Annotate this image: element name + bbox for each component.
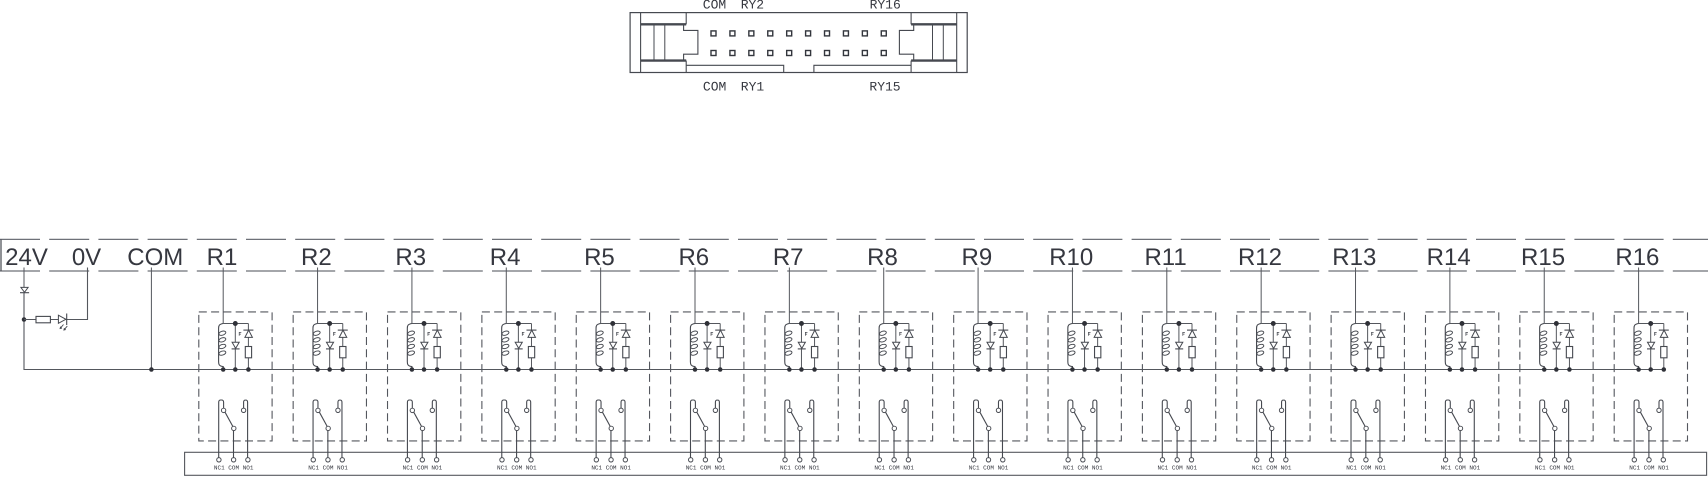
svg-text:NC1 COM NO1: NC1 COM NO1 bbox=[1063, 465, 1103, 472]
svg-text:R14: R14 bbox=[1427, 244, 1471, 271]
svg-text:RY15: RY15 bbox=[869, 79, 900, 94]
svg-text:0V: 0V bbox=[72, 244, 101, 271]
svg-text:R6: R6 bbox=[678, 244, 709, 271]
svg-text:R4: R4 bbox=[490, 244, 521, 271]
svg-text:R7: R7 bbox=[773, 244, 804, 271]
svg-text:RY1: RY1 bbox=[741, 79, 765, 94]
svg-text:NC1 COM NO1: NC1 COM NO1 bbox=[308, 465, 348, 472]
svg-text:NC1 COM NO1: NC1 COM NO1 bbox=[497, 465, 537, 472]
svg-text:R11: R11 bbox=[1144, 244, 1186, 271]
svg-text:R1: R1 bbox=[207, 244, 238, 271]
svg-text:RY16: RY16 bbox=[870, 0, 901, 12]
svg-text:R12: R12 bbox=[1238, 244, 1282, 271]
svg-text:R15: R15 bbox=[1521, 244, 1565, 271]
svg-text:COM: COM bbox=[703, 79, 726, 94]
svg-text:NC1 COM NO1: NC1 COM NO1 bbox=[686, 465, 726, 472]
svg-text:R10: R10 bbox=[1049, 244, 1093, 271]
svg-text:NC1 COM NO1: NC1 COM NO1 bbox=[1535, 465, 1575, 472]
svg-text:NC1 COM NO1: NC1 COM NO1 bbox=[1252, 465, 1292, 472]
svg-text:R16: R16 bbox=[1615, 244, 1659, 271]
svg-text:RY2: RY2 bbox=[741, 0, 764, 12]
svg-text:NC1 COM NO1: NC1 COM NO1 bbox=[214, 465, 254, 472]
svg-text:24V: 24V bbox=[5, 244, 48, 271]
svg-text:R9: R9 bbox=[962, 244, 993, 271]
svg-text:NC1 COM NO1: NC1 COM NO1 bbox=[1629, 465, 1669, 472]
svg-text:R13: R13 bbox=[1332, 244, 1376, 271]
svg-text:COM: COM bbox=[703, 0, 726, 12]
svg-text:R8: R8 bbox=[867, 244, 898, 271]
svg-text:NC1 COM NO1: NC1 COM NO1 bbox=[1441, 465, 1481, 472]
svg-text:NC1 COM NO1: NC1 COM NO1 bbox=[1346, 465, 1386, 472]
svg-text:NC1 COM NO1: NC1 COM NO1 bbox=[1157, 465, 1197, 472]
svg-text:NC1 COM NO1: NC1 COM NO1 bbox=[969, 465, 1009, 472]
svg-text:R5: R5 bbox=[584, 244, 615, 271]
svg-text:COM: COM bbox=[127, 244, 183, 271]
svg-text:NC1 COM NO1: NC1 COM NO1 bbox=[591, 465, 631, 472]
svg-text:R2: R2 bbox=[301, 244, 332, 271]
svg-text:NC1 COM NO1: NC1 COM NO1 bbox=[403, 465, 443, 472]
svg-text:NC1 COM NO1: NC1 COM NO1 bbox=[780, 465, 820, 472]
svg-text:NC1 COM NO1: NC1 COM NO1 bbox=[874, 465, 914, 472]
svg-text:R3: R3 bbox=[395, 244, 426, 271]
